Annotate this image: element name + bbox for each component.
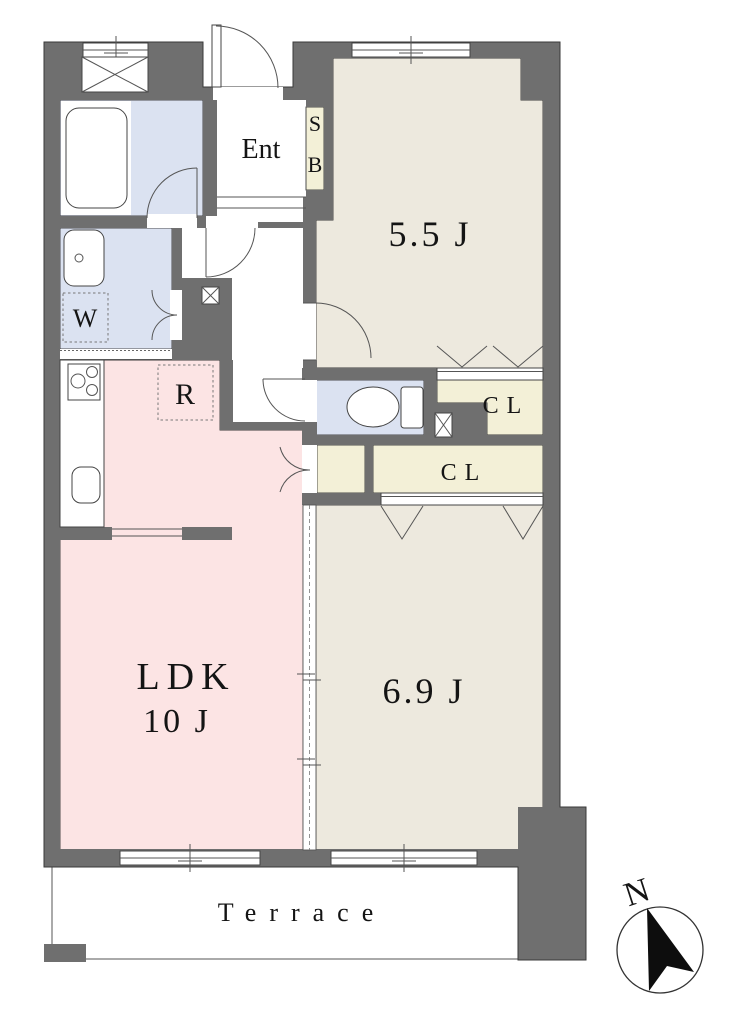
label-living-size: 10 J bbox=[143, 703, 211, 740]
washroom-kitchen-divider bbox=[60, 349, 172, 360]
washbasin bbox=[64, 230, 104, 286]
label-bedroom-south: 6.9 J bbox=[382, 671, 465, 711]
floorplan-page: Ent S B 5.5 J W R CL CL LDK 10 J 6.9 J T… bbox=[0, 0, 737, 1024]
label-shoebox-b: B bbox=[308, 152, 323, 177]
entrance-door bbox=[212, 25, 278, 88]
north-compass: N bbox=[617, 871, 703, 993]
bedroom-north-floor bbox=[316, 58, 543, 368]
toilet-door bbox=[263, 379, 305, 421]
closet-lower-door bbox=[381, 493, 543, 505]
entrance-step bbox=[217, 197, 306, 208]
label-washer: W bbox=[73, 304, 98, 333]
terrace-corner-block bbox=[44, 944, 86, 962]
label-closet-lower: CL bbox=[441, 460, 488, 486]
shaft-box-hall bbox=[202, 287, 219, 304]
shaft-box-closet bbox=[435, 413, 452, 437]
label-north: N bbox=[620, 871, 655, 914]
label-terrace: Terrace bbox=[218, 898, 387, 927]
bathtub bbox=[66, 108, 127, 208]
sink bbox=[72, 467, 100, 503]
pipe-shaft bbox=[82, 57, 148, 92]
toilet bbox=[347, 387, 423, 428]
ldk-storage bbox=[317, 445, 365, 493]
label-refrigerator: R bbox=[175, 378, 195, 411]
label-closet-upper: CL bbox=[483, 393, 530, 419]
closet-upper-door bbox=[437, 368, 543, 380]
hallway-door bbox=[206, 228, 255, 277]
floorplan-drawing: Ent S B 5.5 J W R CL CL LDK 10 J 6.9 J T… bbox=[0, 0, 737, 1024]
label-bedroom-north: 5.5 J bbox=[388, 214, 471, 254]
label-shoebox-s: S bbox=[309, 111, 321, 136]
label-entrance: Ent bbox=[242, 134, 281, 165]
label-living: LDK bbox=[136, 656, 235, 698]
